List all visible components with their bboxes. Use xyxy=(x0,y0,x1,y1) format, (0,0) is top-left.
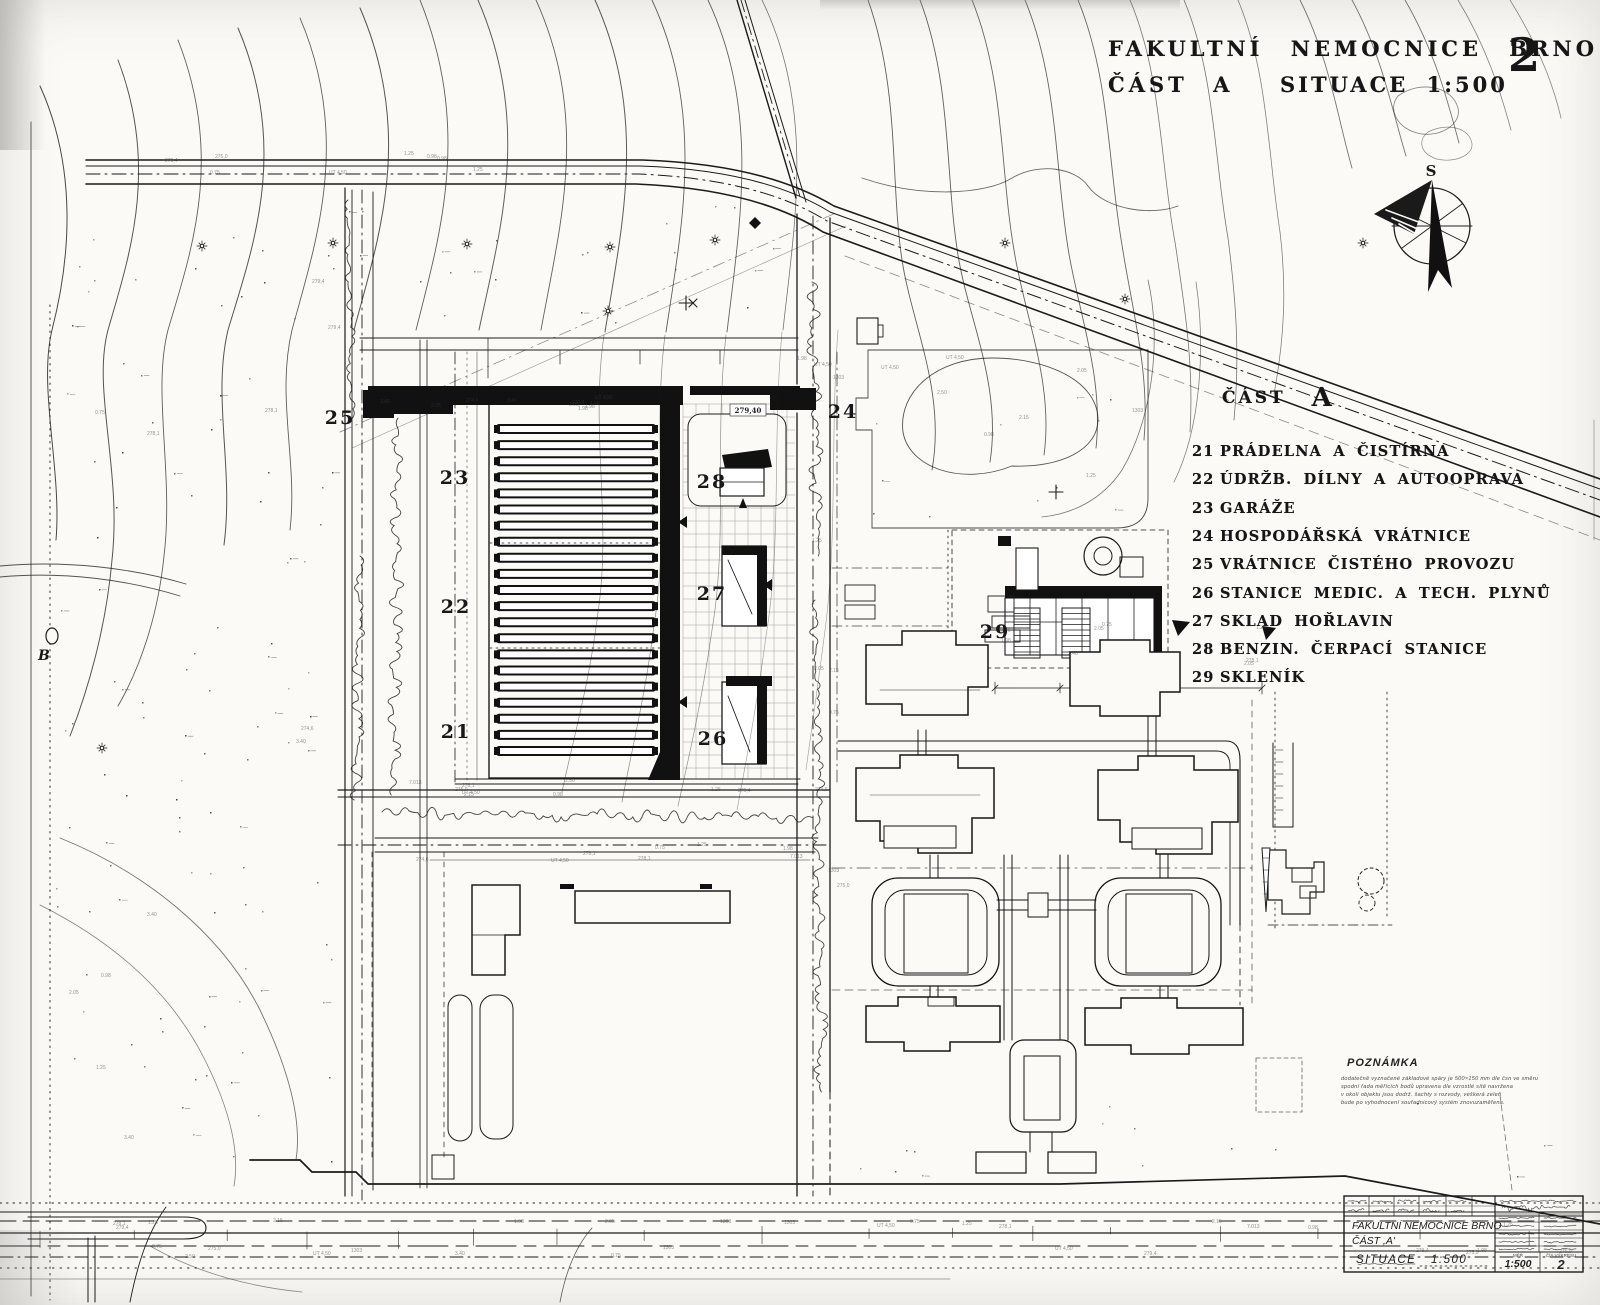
legend-header: ČÁSTA xyxy=(1222,383,1335,413)
svg-text:279,4: 279,4 xyxy=(312,279,325,285)
svg-text:274,6: 274,6 xyxy=(416,857,429,863)
legend-item-label: SKLENÍK xyxy=(1220,669,1305,686)
svg-text:1.98: 1.98 xyxy=(797,356,807,362)
svg-text:0.98: 0.98 xyxy=(427,154,437,160)
svg-text:279,4: 279,4 xyxy=(165,158,178,164)
svg-text:1.25: 1.25 xyxy=(812,538,822,544)
plan-label-25: 25 xyxy=(325,407,355,429)
svg-text:2.05: 2.05 xyxy=(431,403,441,409)
svg-text:2.05: 2.05 xyxy=(605,1219,615,1225)
svg-text:2.50: 2.50 xyxy=(937,390,947,396)
svg-text:1303: 1303 xyxy=(663,1245,674,1251)
legend-item: 26STANICE MEDIC. A TECH. PLYNŮ xyxy=(1192,585,1551,602)
svg-text:0.75: 0.75 xyxy=(655,845,665,851)
svg-text:2.15: 2.15 xyxy=(1212,1219,1222,1225)
sheet-title-part: ČÁST A xyxy=(1108,72,1233,97)
titleblock-project: FAKULTNÍ NEMOCNICE BRNO xyxy=(1352,1220,1502,1232)
svg-text:1303: 1303 xyxy=(351,1248,362,1254)
svg-text:UT 4,50: UT 4,50 xyxy=(1055,1246,1073,1252)
svg-text:3.40: 3.40 xyxy=(1068,651,1078,657)
benchmark-label: B xyxy=(37,648,52,664)
svg-text:7.013: 7.013 xyxy=(1247,1224,1260,1230)
svg-text:7.013: 7.013 xyxy=(790,854,803,860)
legend-item-label: GARÁŽE xyxy=(1220,500,1296,517)
svg-text:0.98: 0.98 xyxy=(437,156,447,162)
legend-item-number: 21 xyxy=(1192,443,1220,460)
svg-text:1.25: 1.25 xyxy=(962,1221,972,1227)
note-reference-box xyxy=(1256,1058,1302,1112)
legend-item: 25VRÁTNICE ČISTÉHO PROVOZU xyxy=(1192,556,1515,573)
svg-text:0.75: 0.75 xyxy=(910,1219,920,1225)
svg-text:1303: 1303 xyxy=(828,868,839,874)
svg-text:UT 4,50: UT 4,50 xyxy=(313,1251,331,1257)
hospital-buildings xyxy=(856,631,1243,1173)
svg-text:1.98: 1.98 xyxy=(783,846,793,852)
plan-label-28: 28 xyxy=(697,471,727,493)
legend-item-number: 22 xyxy=(1192,471,1220,488)
svg-text:2.05: 2.05 xyxy=(69,990,79,996)
svg-text:274,6: 274,6 xyxy=(815,787,828,793)
svg-text:0.98: 0.98 xyxy=(984,432,994,438)
legend-header-word: ČÁST xyxy=(1222,388,1286,408)
svg-text:UT 4,50: UT 4,50 xyxy=(462,790,480,796)
svg-text:1.98: 1.98 xyxy=(514,1219,524,1225)
legend-item-label: SKLAD HOŘLAVIN xyxy=(1220,613,1394,630)
svg-text:274,6: 274,6 xyxy=(466,398,479,404)
svg-text:2.15: 2.15 xyxy=(273,1218,283,1224)
svg-text:1303: 1303 xyxy=(784,1220,795,1226)
legend-item: 28BENZIN. ČERPACÍ STANICE xyxy=(1192,641,1487,658)
svg-text:1303: 1303 xyxy=(720,1219,731,1225)
svg-text:3.40: 3.40 xyxy=(124,1135,134,1141)
titleblock-number-value: 2 xyxy=(1540,1257,1582,1272)
legend-item-label: PRÁDELNA A ČISTÍRNA xyxy=(1220,443,1450,460)
elevation-annotation: 279,40 xyxy=(735,406,762,415)
svg-text:7.013: 7.013 xyxy=(409,780,422,786)
tree-lines xyxy=(345,200,828,1092)
titleblock-part: ČÁST ,A' xyxy=(1352,1235,1395,1247)
plan-label-23: 23 xyxy=(440,467,470,489)
svg-text:UT 4,50: UT 4,50 xyxy=(814,362,832,368)
svg-text:1.25: 1.25 xyxy=(1503,1222,1513,1228)
legend-header-letter: A xyxy=(1312,383,1335,413)
sheet-number: 2 xyxy=(1508,28,1540,82)
legend-item-number: 23 xyxy=(1192,500,1220,517)
svg-text:2.15: 2.15 xyxy=(1019,415,1029,421)
svg-text:2.15: 2.15 xyxy=(829,668,839,674)
legend-item: 29SKLENÍK xyxy=(1192,669,1305,686)
survey-dots-field xyxy=(56,206,1552,1178)
svg-text:275,0: 275,0 xyxy=(1466,1250,1479,1256)
titleblock-scale-value: 1:500 xyxy=(1498,1258,1538,1270)
legend-item: 24HOSPODÁŘSKÁ VRÁTNICE xyxy=(1192,528,1471,545)
svg-text:2.05: 2.05 xyxy=(1077,368,1087,374)
west-service-buildings xyxy=(372,852,730,1179)
titleblock-drawing: SITUACE 1:500 xyxy=(1356,1254,1467,1266)
legend-item-number: 25 xyxy=(1192,556,1220,573)
svg-text:1.25: 1.25 xyxy=(473,167,483,173)
svg-text:0.75: 0.75 xyxy=(210,170,220,176)
legend-item-number: 28 xyxy=(1192,641,1220,658)
svg-text:3.40: 3.40 xyxy=(507,398,517,404)
compass-north-label: S xyxy=(1426,162,1439,180)
legend-item: 23GARÁŽE xyxy=(1192,500,1296,517)
svg-text:1.25: 1.25 xyxy=(1086,473,1096,479)
plan-label-27: 27 xyxy=(697,583,727,605)
svg-text:1.98: 1.98 xyxy=(578,406,588,412)
svg-text:UT 4,50: UT 4,50 xyxy=(881,365,899,371)
svg-text:278,1: 278,1 xyxy=(583,851,596,857)
svg-text:0.75: 0.75 xyxy=(95,410,105,416)
plan-label-24: 24 xyxy=(828,401,858,423)
legend-item-label: STANICE MEDIC. A TECH. PLYNŮ xyxy=(1220,585,1551,602)
plan-label-26: 26 xyxy=(698,728,728,750)
gatehouse-24-block xyxy=(770,388,816,410)
svg-text:1.25: 1.25 xyxy=(96,1065,106,1071)
svg-text:UT 4,50: UT 4,50 xyxy=(946,355,964,361)
note-line: v okolí objektu jsou dodrž. šachty s roz… xyxy=(1341,1092,1501,1098)
svg-text:278,1: 278,1 xyxy=(265,408,278,414)
legend-item: 22ÚDRŽB. DÍLNY A AUTOOPRAVA xyxy=(1192,471,1524,488)
svg-text:1.25: 1.25 xyxy=(404,151,414,157)
drawing-sheet: S 274,62.05UT 4,501.982.053.40279,41.981… xyxy=(0,0,1600,1305)
svg-text:0.98: 0.98 xyxy=(553,792,563,798)
svg-text:3.40: 3.40 xyxy=(296,739,306,745)
svg-text:3.40: 3.40 xyxy=(380,399,390,405)
svg-text:1.25: 1.25 xyxy=(711,787,721,793)
svg-text:279,4: 279,4 xyxy=(328,325,341,331)
svg-text:275,0: 275,0 xyxy=(837,883,850,889)
svg-text:2.50: 2.50 xyxy=(185,1254,195,1260)
svg-text:279,4: 279,4 xyxy=(738,788,751,794)
svg-text:2.05: 2.05 xyxy=(1094,626,1104,632)
svg-text:UT 4,50: UT 4,50 xyxy=(877,1223,895,1229)
svg-text:275,0: 275,0 xyxy=(208,1246,221,1252)
note-line: dodatečně vyznačené základové spáry je 5… xyxy=(1341,1076,1538,1082)
svg-text:0.75: 0.75 xyxy=(611,1253,621,1259)
svg-text:3.40: 3.40 xyxy=(147,912,157,918)
svg-text:279,4: 279,4 xyxy=(1144,1251,1157,1257)
svg-text:274,6: 274,6 xyxy=(301,726,314,732)
svg-text:278,1: 278,1 xyxy=(147,431,160,437)
sheet-title-scale: SITUACE 1:500 xyxy=(1280,72,1508,97)
svg-text:3.40: 3.40 xyxy=(455,1251,465,1257)
note-line: spodní řada měřících bodů upravena dle v… xyxy=(1341,1084,1513,1090)
garage-stalls xyxy=(494,425,658,755)
svg-text:278,1: 278,1 xyxy=(1246,658,1259,664)
site-boundary xyxy=(250,1160,1600,1224)
note-line: bude po vyhodnocení souřadnicový systém … xyxy=(1341,1100,1505,1106)
svg-text:0.98: 0.98 xyxy=(101,973,111,979)
svg-text:UT 4,50: UT 4,50 xyxy=(551,858,569,864)
svg-text:0.75: 0.75 xyxy=(152,1244,162,1250)
gas-station-26 xyxy=(722,676,772,764)
plan-label-29: 29 xyxy=(980,621,1010,643)
svg-text:1303: 1303 xyxy=(833,375,844,381)
svg-text:0.98: 0.98 xyxy=(1308,1225,1318,1231)
legend-item-number: 26 xyxy=(1192,585,1220,602)
svg-text:2.05: 2.05 xyxy=(814,666,824,672)
plan-label-22: 22 xyxy=(441,596,471,618)
legend-item-label: BENZIN. ČERPACÍ STANICE xyxy=(1220,641,1487,658)
legend-item: 21PRÁDELNA A ČISTÍRNA xyxy=(1192,443,1450,460)
flammables-store-27 xyxy=(722,546,767,626)
svg-text:278,1: 278,1 xyxy=(999,1224,1012,1230)
legend-item: 27SKLAD HOŘLAVIN xyxy=(1192,613,1394,630)
legend-item-number: 27 xyxy=(1192,613,1220,630)
legend-item-number: 29 xyxy=(1192,669,1220,686)
legend-item-label: VRÁTNICE ČISTÉHO PROVOZU xyxy=(1220,556,1515,573)
svg-text:1.25: 1.25 xyxy=(697,842,707,848)
svg-text:278,1: 278,1 xyxy=(638,856,651,862)
legend-item-label: HOSPODÁŘSKÁ VRÁTNICE xyxy=(1220,528,1471,545)
legend-item-label: ÚDRŽB. DÍLNY A AUTOOPRAVA xyxy=(1220,471,1524,488)
svg-text:1303: 1303 xyxy=(1132,408,1143,414)
note-heading: POZNÁMKA xyxy=(1347,1057,1419,1069)
svg-text:275,0: 275,0 xyxy=(215,154,228,160)
legend-item-number: 24 xyxy=(1192,528,1220,545)
svg-text:0.75: 0.75 xyxy=(829,710,839,716)
east-technical-cluster xyxy=(1262,692,1392,930)
svg-text:UT 4,50: UT 4,50 xyxy=(329,170,347,176)
svg-text:279,4: 279,4 xyxy=(116,1225,129,1231)
svg-text:1.98: 1.98 xyxy=(590,401,600,407)
bottom-road xyxy=(0,1203,1600,1302)
north-arrow: S xyxy=(1374,162,1472,292)
plan-label-21: 21 xyxy=(441,721,471,743)
svg-text:2.50: 2.50 xyxy=(565,778,575,784)
svg-text:1.25: 1.25 xyxy=(148,1220,158,1226)
